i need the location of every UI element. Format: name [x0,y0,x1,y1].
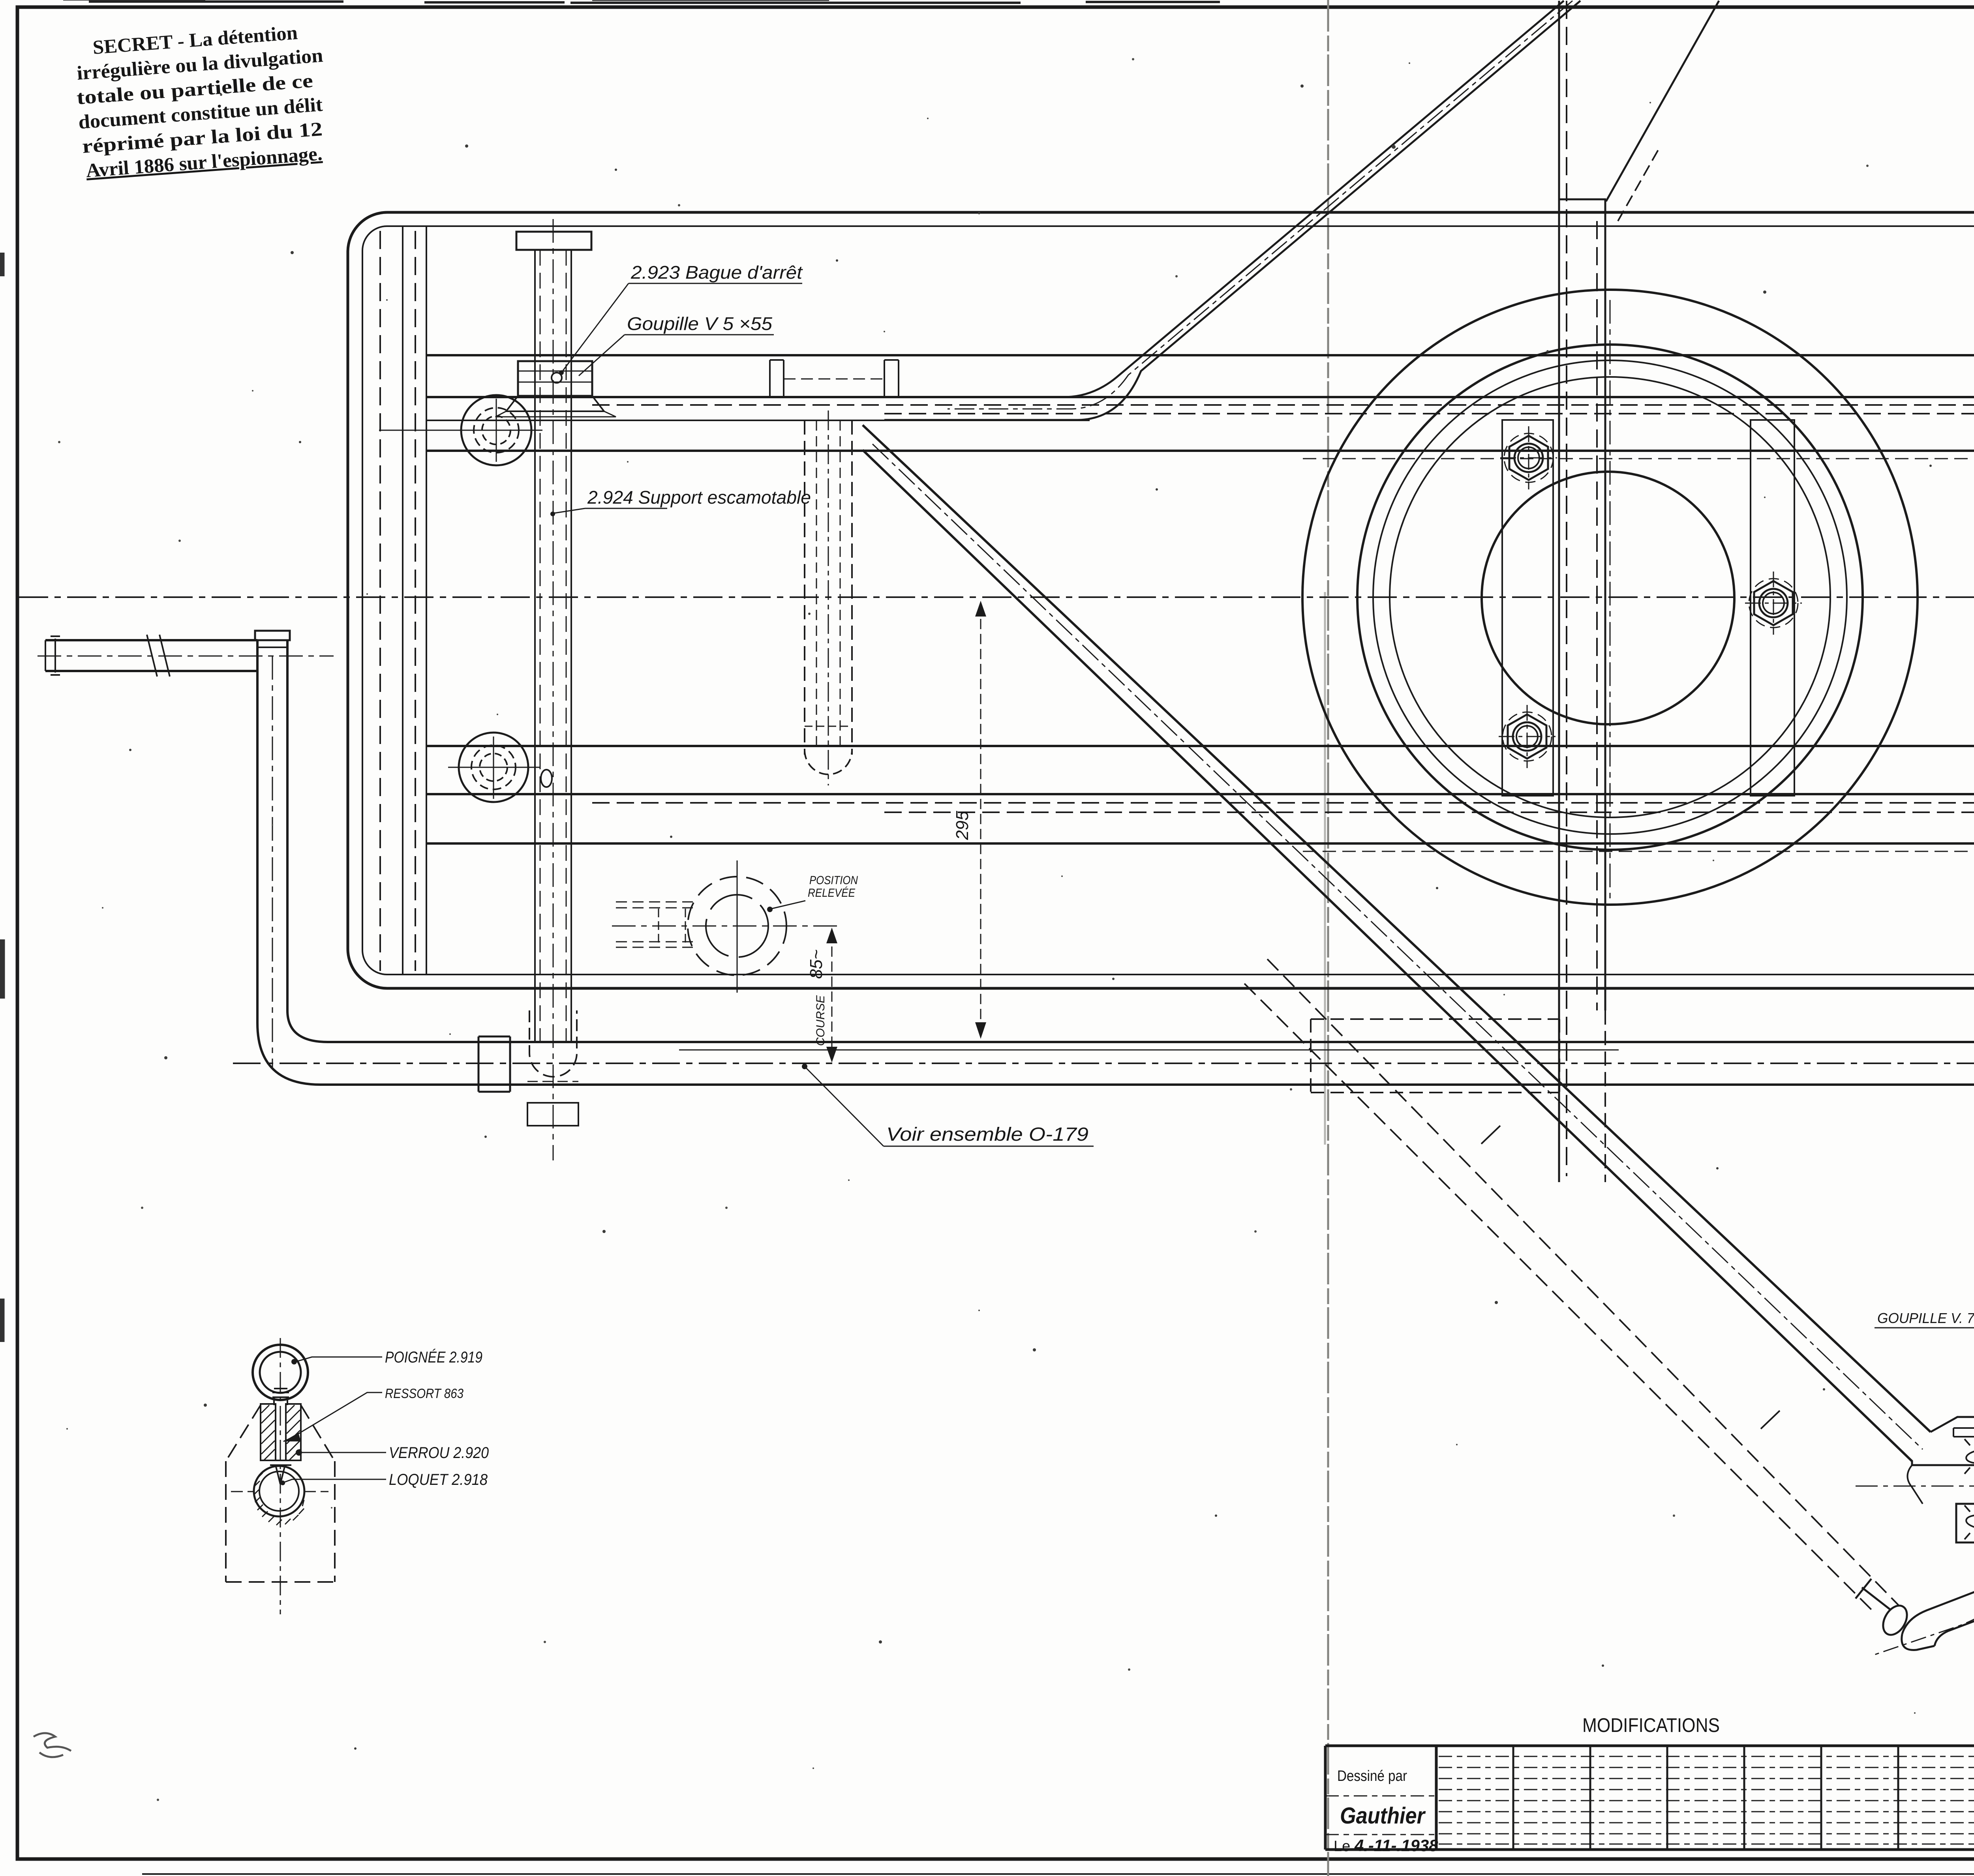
svg-text:POIGNÉE 2.919: POIGNÉE 2.919 [385,1348,482,1366]
svg-text:Dessiné par: Dessiné par [1337,1768,1407,1784]
svg-text:Gauthier: Gauthier [1340,1803,1426,1829]
svg-text:LOQUET 2.918: LOQUET 2.918 [389,1471,488,1488]
svg-text:COURSE: COURSE [814,995,827,1046]
svg-text:2.923 Bague d'arrêt: 2.923 Bague d'arrêt [630,262,803,283]
svg-text:MODIFICATIONS: MODIFICATIONS [1582,1714,1720,1736]
svg-text:Voir ensemble O-179: Voir ensemble O-179 [886,1124,1088,1145]
svg-text:VERROU 2.920: VERROU 2.920 [389,1444,489,1462]
svg-text:Goupille V 5 ×55: Goupille V 5 ×55 [627,313,772,334]
svg-text:RELEVÉE: RELEVÉE [808,886,856,900]
svg-text:2.924 Support escamotable: 2.924 Support escamotable [587,487,811,508]
svg-text:POSITION: POSITION [809,874,858,887]
svg-text:RESSORT 863: RESSORT 863 [385,1386,463,1401]
svg-text:Le 4.-11-.1938: Le 4.-11-.1938 [1334,1836,1438,1855]
svg-text:GOUPILLE V. 7. 65: GOUPILLE V. 7. 65 [1877,1310,1974,1326]
svg-text:85~: 85~ [807,949,826,979]
svg-text:295: 295 [953,811,972,840]
